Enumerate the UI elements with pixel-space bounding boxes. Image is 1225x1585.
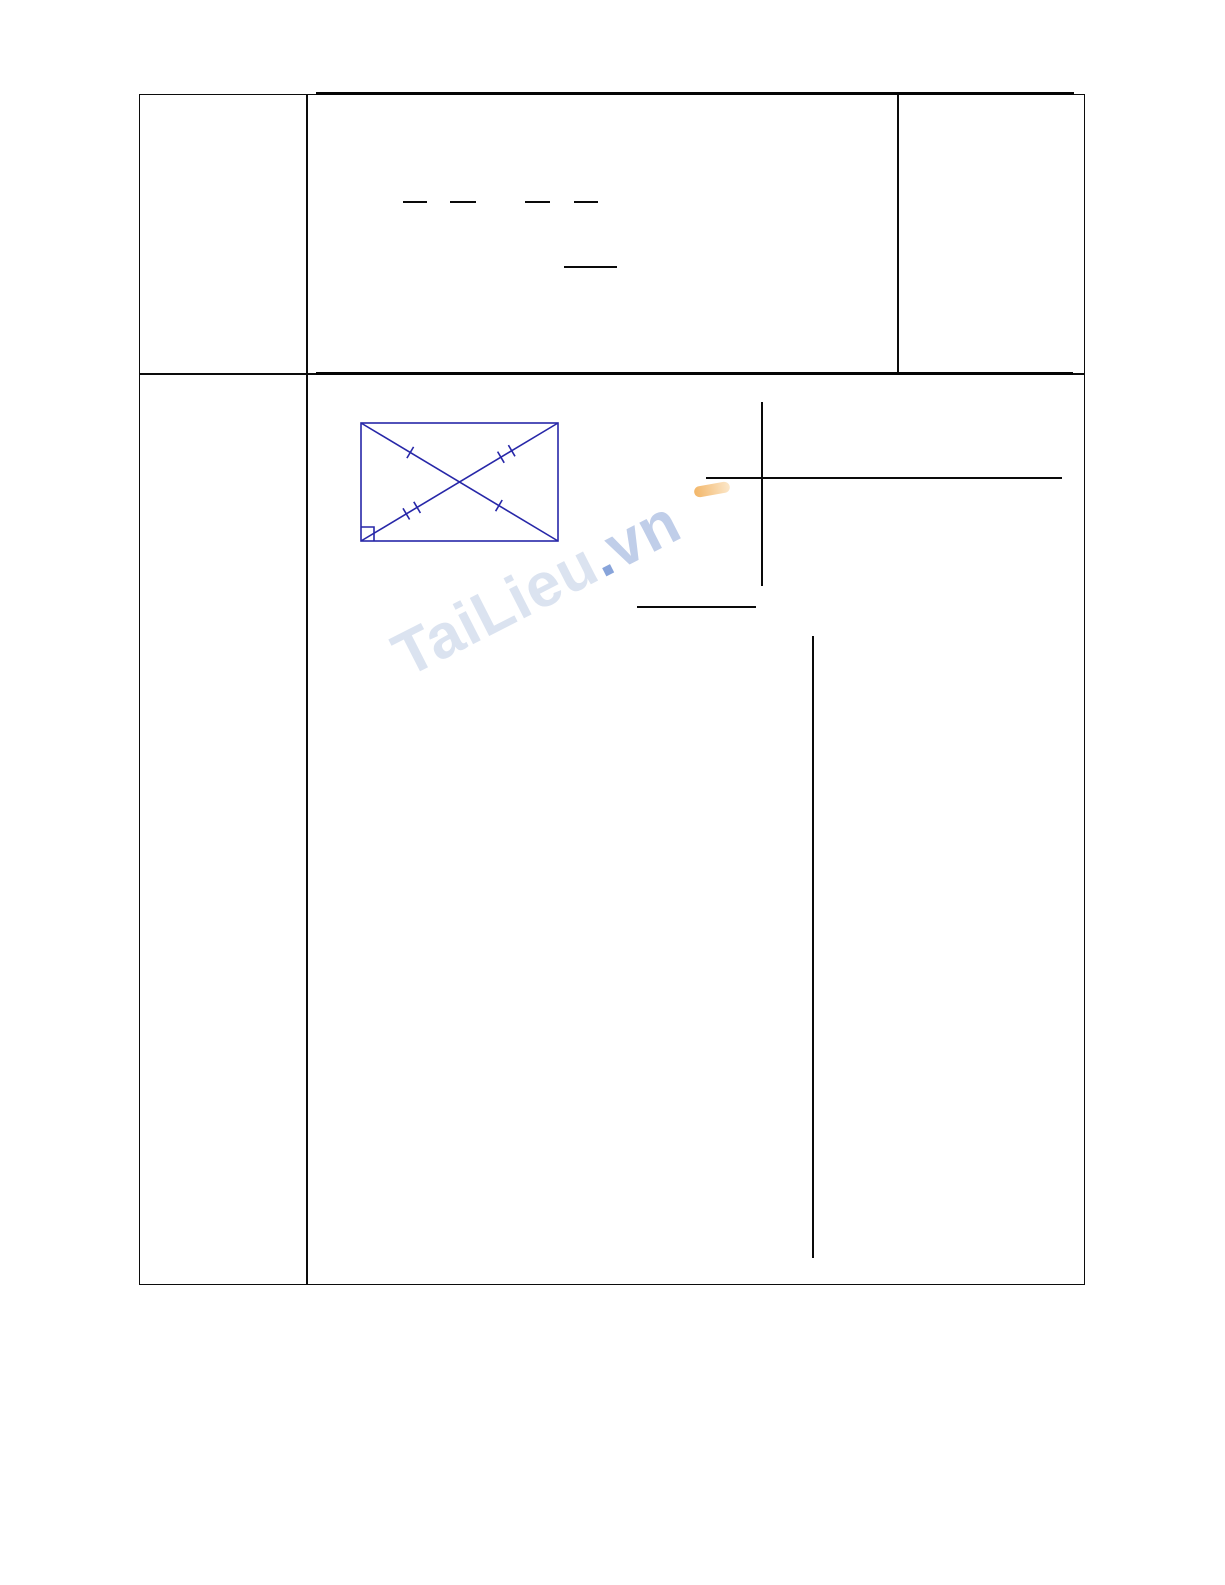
single-tick-top-left xyxy=(407,447,414,458)
heavy-rule-middle xyxy=(316,372,1073,375)
double-tick-bottom-left-2 xyxy=(403,508,410,519)
fraction-bar-5 xyxy=(564,266,617,268)
rectangle-diagonals-figure xyxy=(360,422,559,542)
double-tick-bottom-left-1 xyxy=(414,502,421,513)
construction-vertical-line xyxy=(761,402,763,586)
document-page: TaiLieu.vn xyxy=(0,0,1225,1585)
fraction-bar-3 xyxy=(525,201,550,203)
table-outer-border xyxy=(139,94,1085,1285)
fraction-bar-1 xyxy=(403,201,427,203)
construction-horizontal-line xyxy=(706,477,1062,479)
long-vertical-line xyxy=(812,636,814,1258)
double-tick-top-right-1 xyxy=(508,445,515,456)
table-left-column-divider xyxy=(306,94,308,1285)
single-tick-bottom-right xyxy=(496,500,503,511)
fraction-bar-2 xyxy=(450,201,476,203)
table-header-column-divider xyxy=(897,94,899,375)
double-tick-top-right-2 xyxy=(498,452,505,463)
short-underline xyxy=(637,606,756,608)
heavy-rule-top xyxy=(316,92,1074,95)
fraction-bar-4 xyxy=(574,201,598,203)
